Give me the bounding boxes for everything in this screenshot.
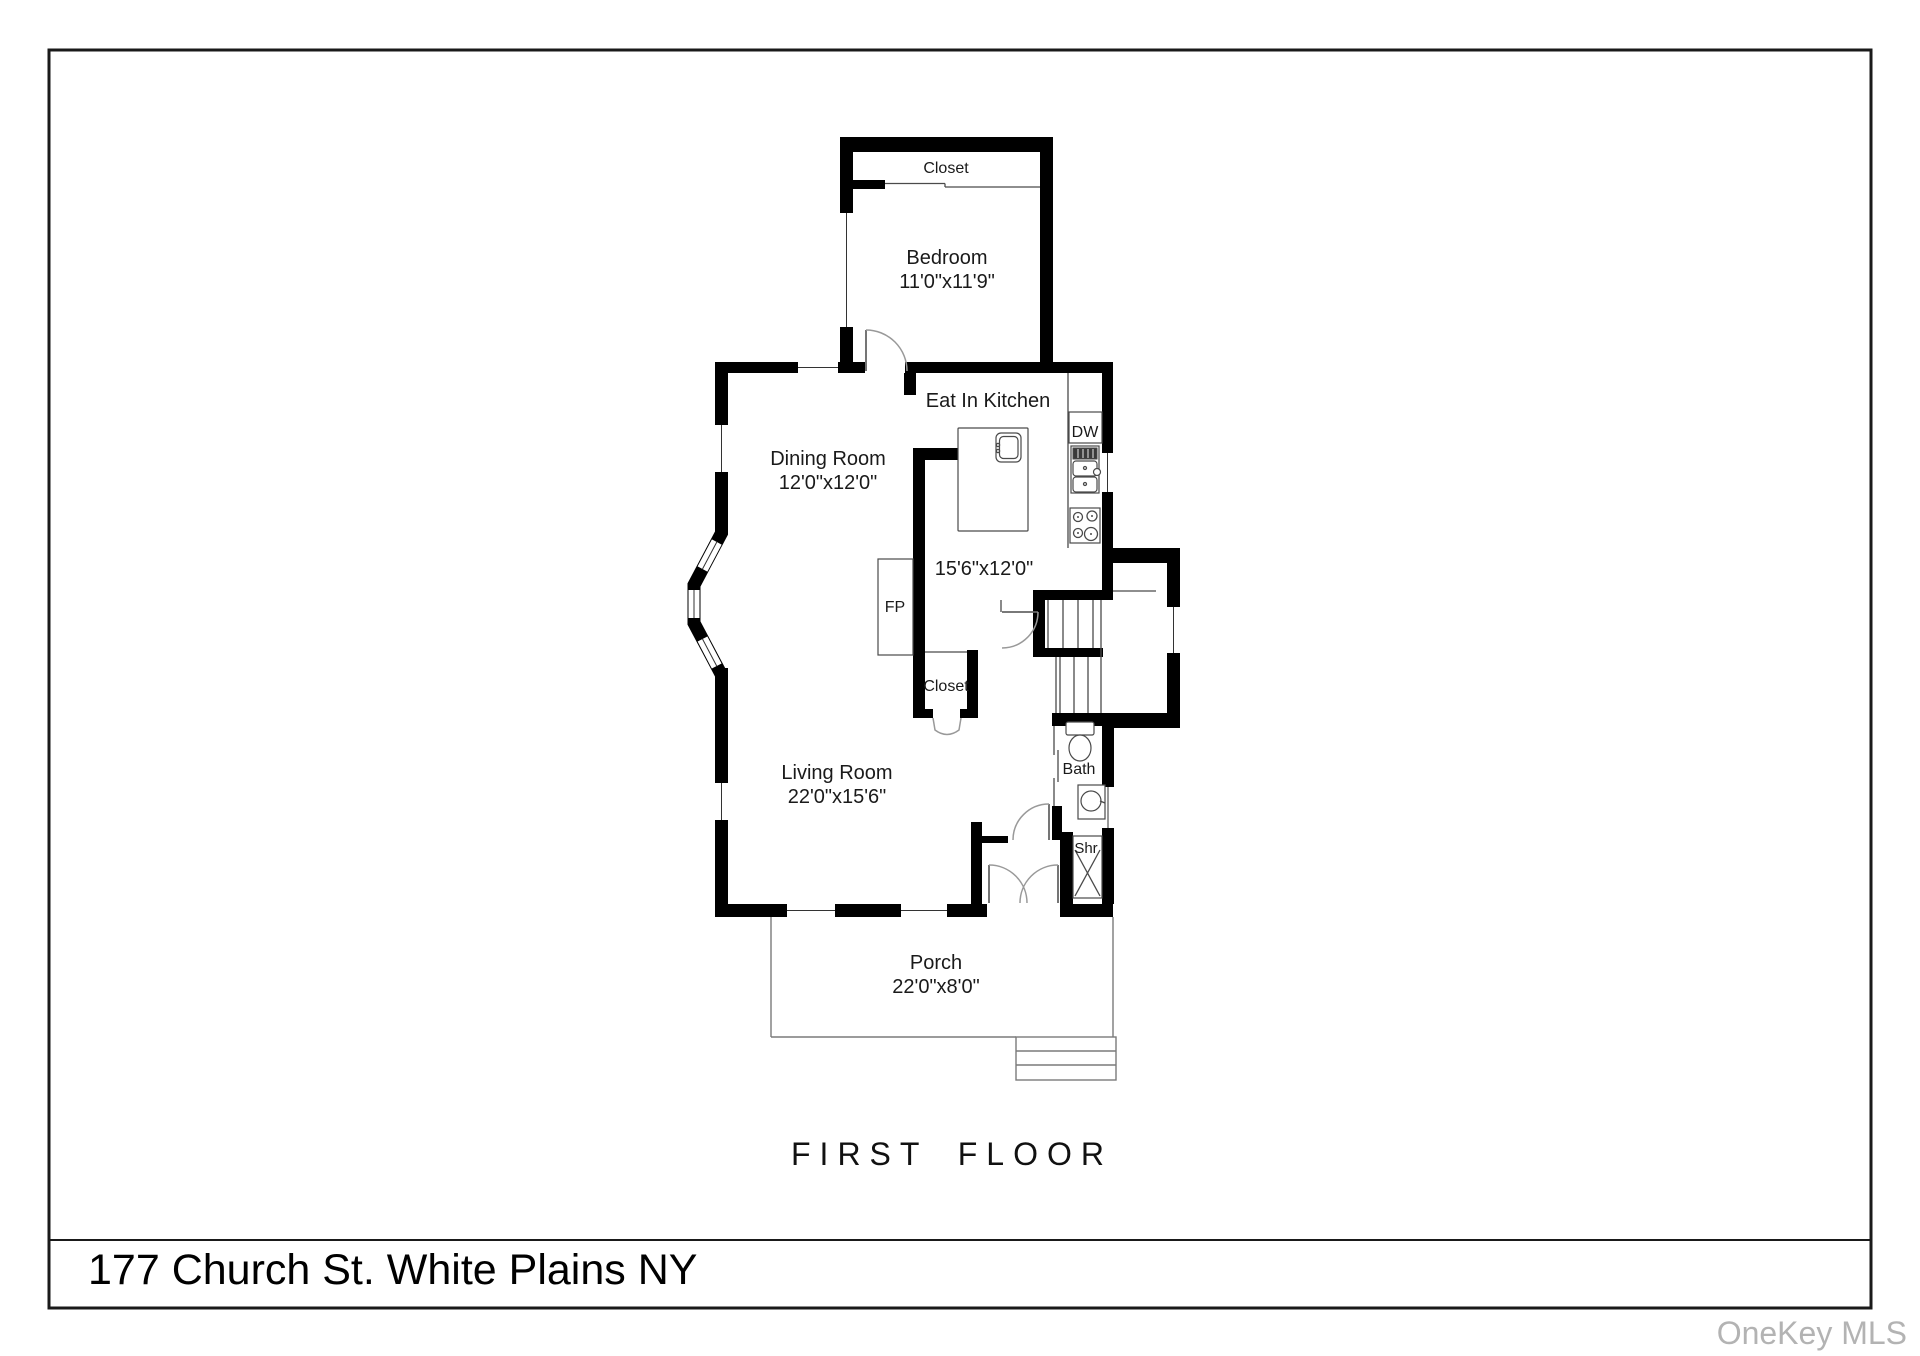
kitchen-sink-icon [1071, 446, 1101, 493]
front-door-right-arc [1020, 865, 1058, 903]
living-label: Living Room [781, 762, 892, 784]
bedroom-closet-label: Closet [923, 160, 969, 177]
dishwasher-label: DW [1072, 424, 1100, 441]
mls-watermark: OneKey MLS [1717, 1315, 1907, 1351]
floor-plan-page: Closet Bedroom 11'0"x11'9" Eat In Kitche… [0, 0, 1920, 1356]
shower-label: Shr [1074, 840, 1097, 857]
porch-steps [1016, 1037, 1116, 1080]
island-counter [958, 428, 1028, 531]
toilet-icon [1066, 722, 1094, 761]
living-closet-label: Closet [923, 678, 969, 695]
floor-plan-canvas: Closet Bedroom 11'0"x11'9" Eat In Kitche… [0, 0, 1920, 1356]
stove-icon [1070, 508, 1100, 543]
fireplace-label: FP [885, 599, 905, 616]
bedroom-label: Bedroom [906, 247, 987, 269]
dining-dims: 12'0"x12'0" [779, 472, 878, 494]
hall-door-arc [1002, 612, 1038, 648]
bath-door-arc [1013, 804, 1049, 840]
address-text: 177 Church St. White Plains NY [88, 1246, 697, 1294]
dining-label: Dining Room [770, 448, 886, 470]
faucet-icon [1094, 469, 1101, 476]
bedroom-dims: 11'0"x11'9" [899, 271, 995, 293]
kitchen-label: Eat In Kitchen [926, 390, 1051, 412]
plan-title: FIRST FLOOR [791, 1136, 1113, 1172]
porch-dims: 22'0"x8'0" [892, 976, 979, 998]
bedroom-door-arc [866, 330, 907, 371]
bath-label: Bath [1063, 761, 1096, 778]
closet-door-swing [933, 718, 961, 735]
front-door-left-arc [989, 865, 1027, 903]
vanity-sink-icon [1078, 785, 1105, 819]
porch-label: Porch [910, 952, 962, 974]
living-dims: 22'0"x15'6" [788, 786, 887, 808]
kitchen-dims: 15'6"x12'0" [935, 558, 1034, 580]
